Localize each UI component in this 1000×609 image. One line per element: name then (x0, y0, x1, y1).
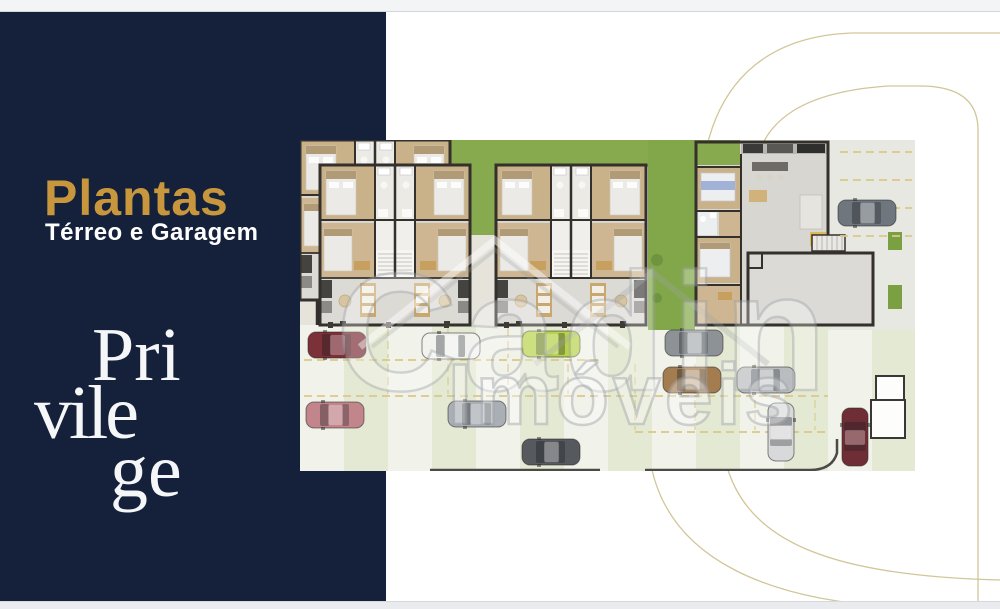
car-silver-car-2 (737, 365, 795, 395)
car-lime-car (522, 329, 580, 359)
car-gray-car-driveway (838, 198, 896, 228)
car-dark-gray-car (522, 437, 580, 467)
floorplan-image (300, 140, 915, 471)
car-gray-car (665, 328, 723, 358)
garage-floor (300, 325, 915, 471)
annex-structure (871, 376, 905, 438)
car-brown-car (663, 365, 721, 395)
car-silver-car (448, 399, 506, 429)
privilege-logo: Pri vile ge (40, 326, 260, 500)
car-pink-car (306, 400, 364, 430)
bottom-window-bar (0, 601, 1000, 609)
top-window-bar (0, 0, 1000, 12)
car-dark-red-car-vertical (840, 408, 870, 466)
car-dark-red-car (308, 330, 366, 360)
townhouse-block-1 (320, 165, 470, 326)
car-white-car (422, 331, 480, 361)
townhouse-block-2 (496, 165, 646, 326)
page-subtitle: Térreo e Garagem (45, 219, 258, 247)
car-white-car-vertical (766, 403, 796, 461)
logo-line-3: ge (110, 442, 260, 500)
